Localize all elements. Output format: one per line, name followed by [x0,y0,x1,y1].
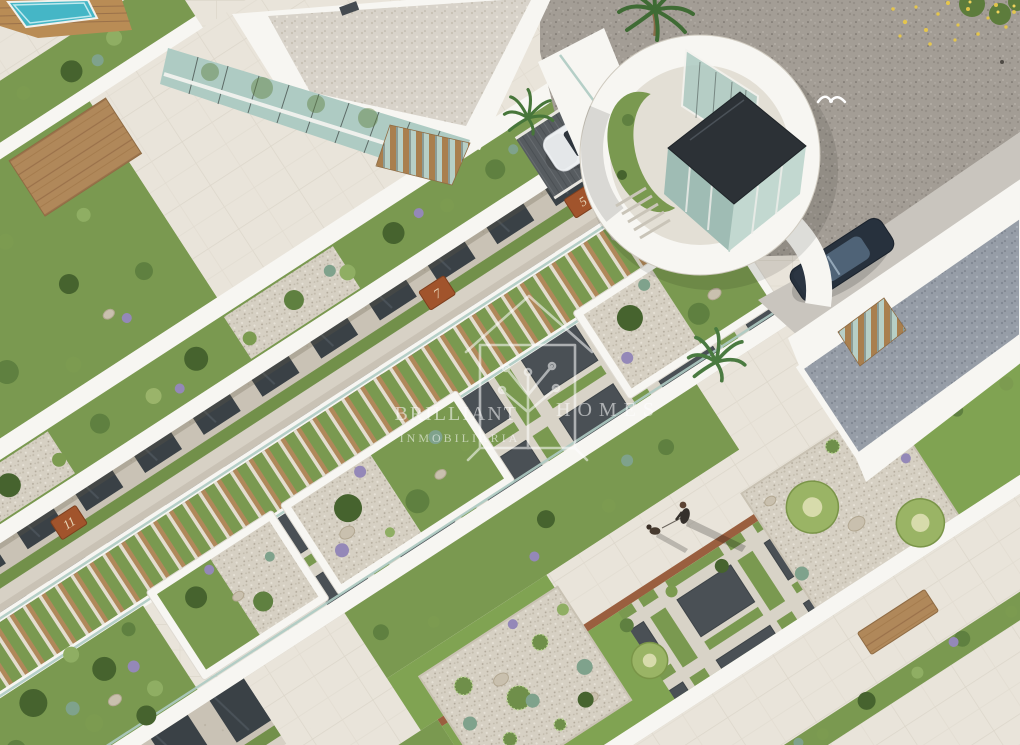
person-head [680,502,687,509]
render-viewport: 5711 [0,0,1020,745]
watermark-brand-left: BRILLIANT [394,403,518,425]
watermark-subtitle: INMOBILIARIA [400,431,521,445]
dog-head [646,524,651,529]
shrub [622,114,634,126]
small-bird-icon [1000,60,1004,64]
shrub [617,170,627,180]
scene-svg: 5711 [0,0,1020,745]
watermark-brand-right: HOMES [556,399,661,421]
